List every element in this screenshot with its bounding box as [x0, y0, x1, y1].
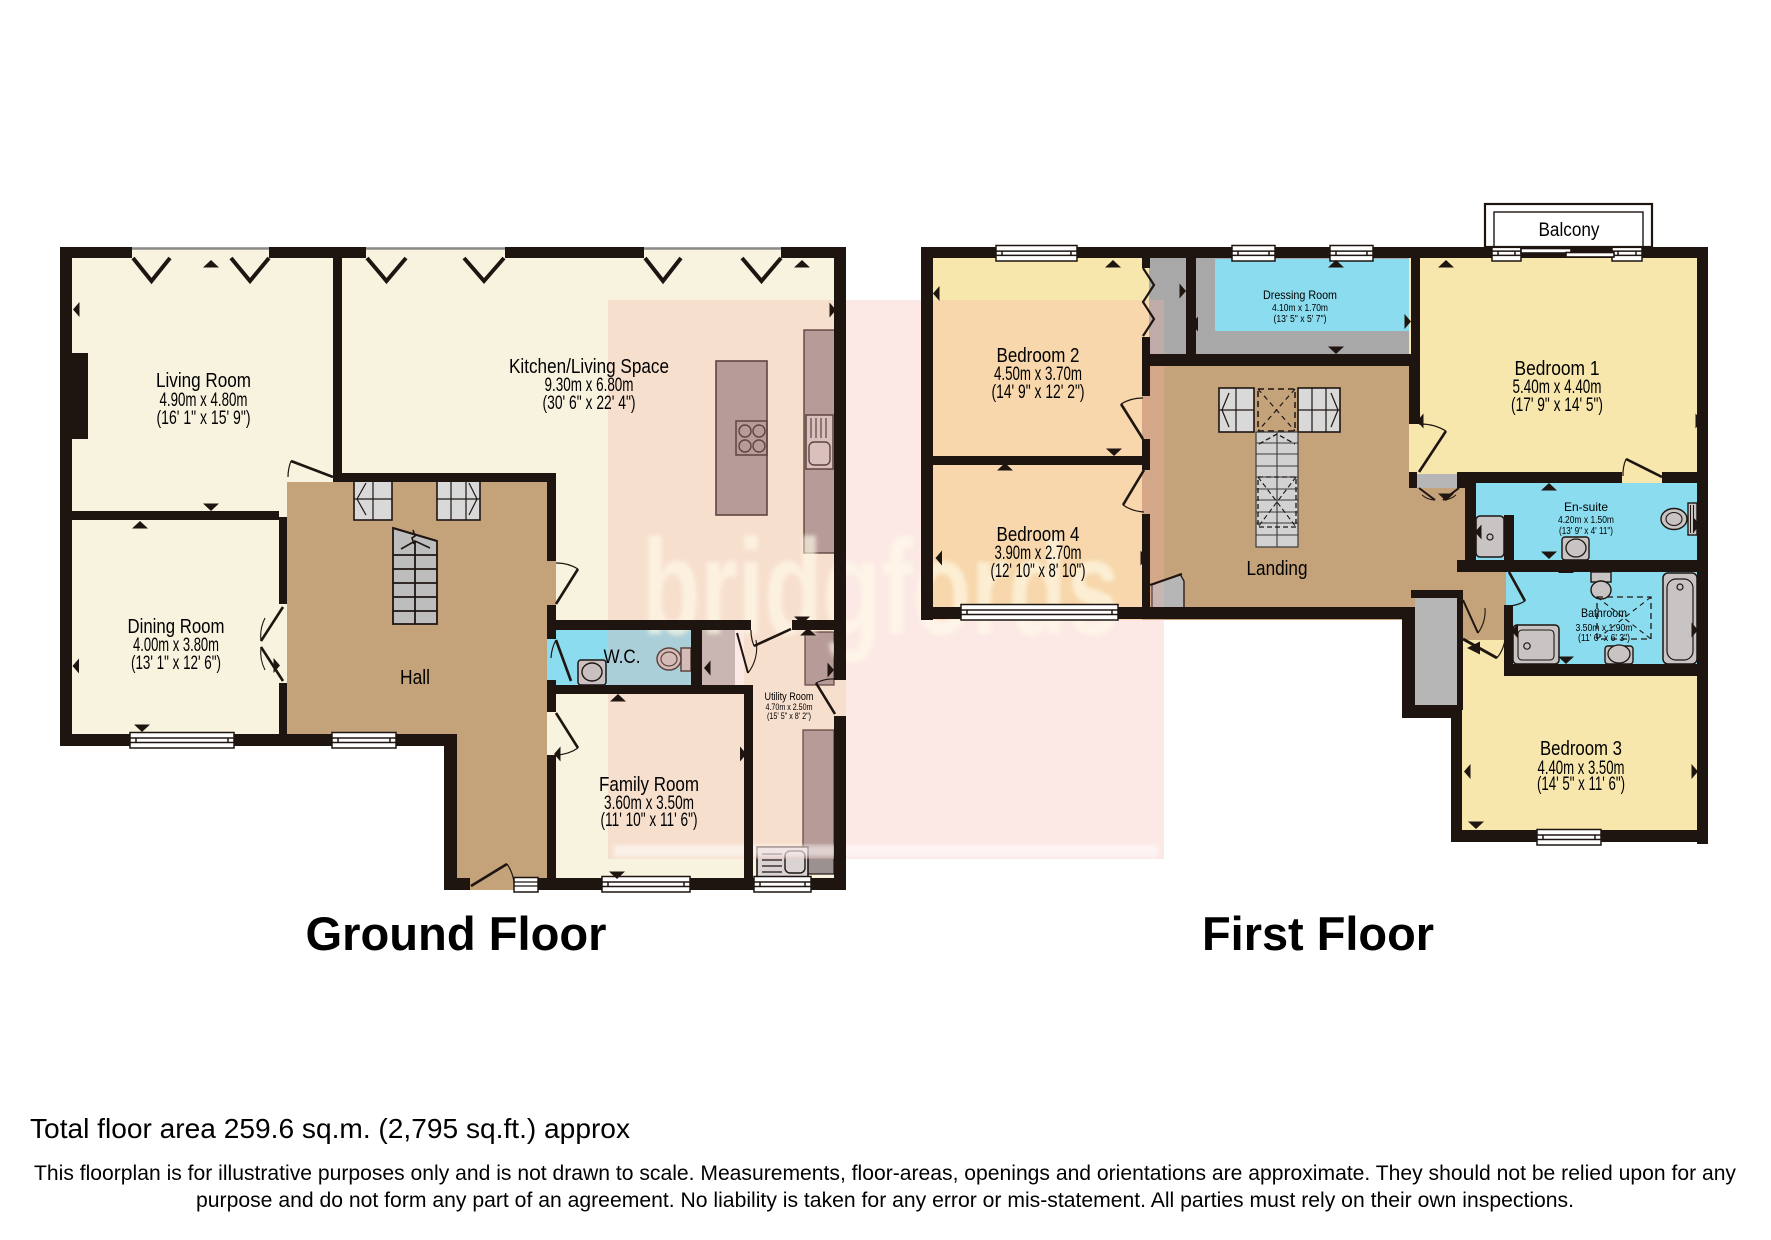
svg-text:(14' 9" x 12' 2"): (14' 9" x 12' 2") [992, 382, 1085, 403]
svg-text:(15' 5" x 8' 2"): (15' 5" x 8' 2") [767, 711, 811, 722]
svg-text:(17' 9" x 14' 5"): (17' 9" x 14' 5") [1511, 395, 1603, 416]
svg-text:(16' 1" x 15' 9"): (16' 1" x 15' 9") [157, 408, 251, 429]
svg-text:En-suite: En-suite [1564, 500, 1608, 514]
svg-text:purpose and do not form any pa: purpose and do not form any part of an a… [196, 1189, 1574, 1212]
svg-text:4.20m x 1.50m: 4.20m x 1.50m [1558, 515, 1614, 526]
svg-text:(13' 5" x 5' 7"): (13' 5" x 5' 7") [1274, 314, 1327, 325]
svg-text:W.C.: W.C. [604, 647, 641, 668]
svg-text:(13' 9" x 4' 11"): (13' 9" x 4' 11") [1559, 526, 1613, 537]
svg-text:First Floor: First Floor [1202, 907, 1434, 960]
svg-text:4.10m x 1.70m: 4.10m x 1.70m [1272, 303, 1328, 314]
svg-text:Balcony: Balcony [1539, 220, 1600, 241]
svg-text:(13' 1" x 12' 6"): (13' 1" x 12' 6") [131, 653, 221, 674]
svg-text:Total floor area 259.6 sq.m. (: Total floor area 259.6 sq.m. (2,795 sq.f… [30, 1113, 630, 1144]
svg-text:This floorplan is for illustra: This floorplan is for illustrative purpo… [34, 1162, 1736, 1185]
svg-text:(11' 6" x 6' 3"): (11' 6" x 6' 3") [1578, 633, 1630, 644]
svg-text:Landing: Landing [1247, 558, 1308, 580]
svg-text:Hall: Hall [400, 667, 430, 689]
svg-text:(14' 5" x 11' 6"): (14' 5" x 11' 6") [1537, 774, 1625, 795]
svg-text:(30' 6" x 22' 4"): (30' 6" x 22' 4") [543, 393, 636, 414]
svg-text:Bedroom 3: Bedroom 3 [1540, 738, 1622, 760]
svg-text:Dressing Room: Dressing Room [1263, 288, 1337, 302]
svg-text:Bathroom: Bathroom [1581, 606, 1627, 620]
svg-text:Ground Floor: Ground Floor [306, 907, 607, 960]
svg-text:(12' 10" x 8' 10"): (12' 10" x 8' 10") [991, 561, 1086, 582]
svg-text:Living Room: Living Room [156, 370, 251, 392]
svg-text:(11' 10" x 11' 6"): (11' 10" x 11' 6") [601, 810, 698, 831]
